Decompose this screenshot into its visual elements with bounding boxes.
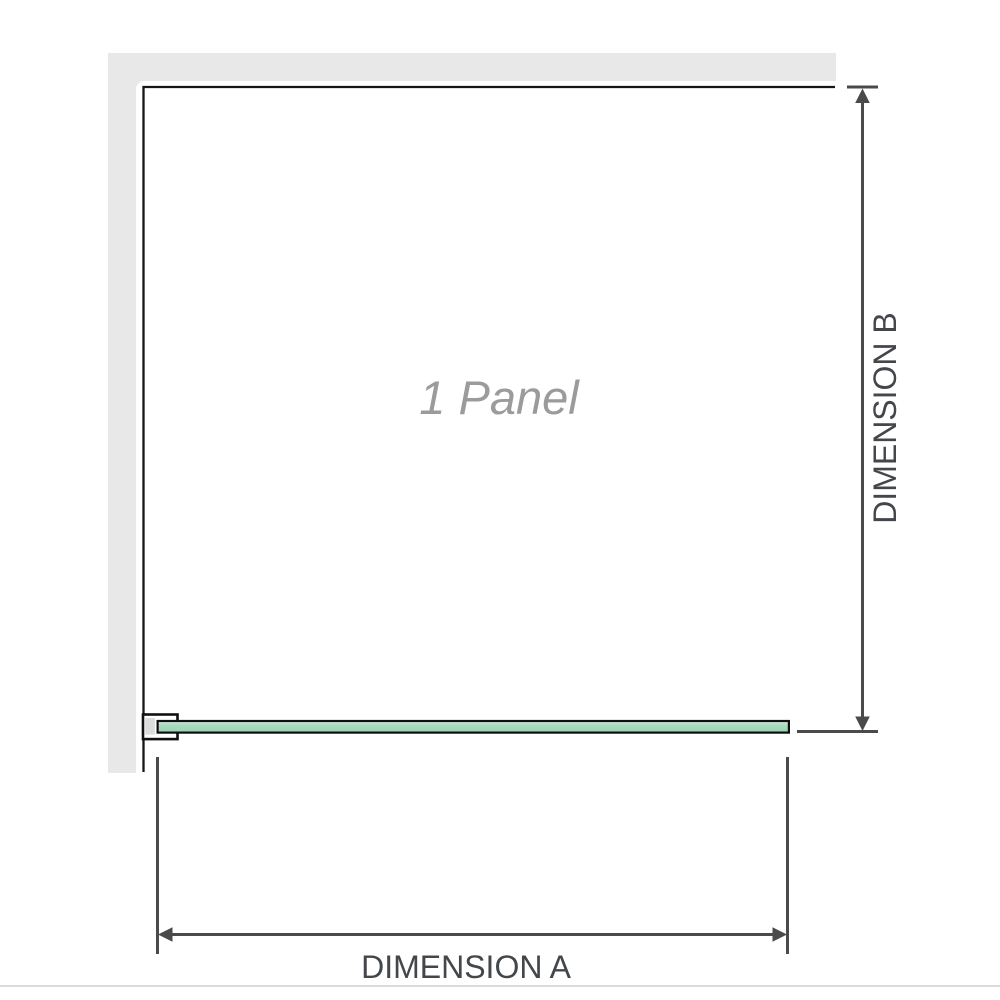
svg-text:1 Panel: 1 Panel bbox=[419, 371, 580, 424]
svg-text:DIMENSION A: DIMENSION A bbox=[361, 949, 571, 985]
svg-text:DIMENSION B: DIMENSION B bbox=[867, 312, 903, 524]
